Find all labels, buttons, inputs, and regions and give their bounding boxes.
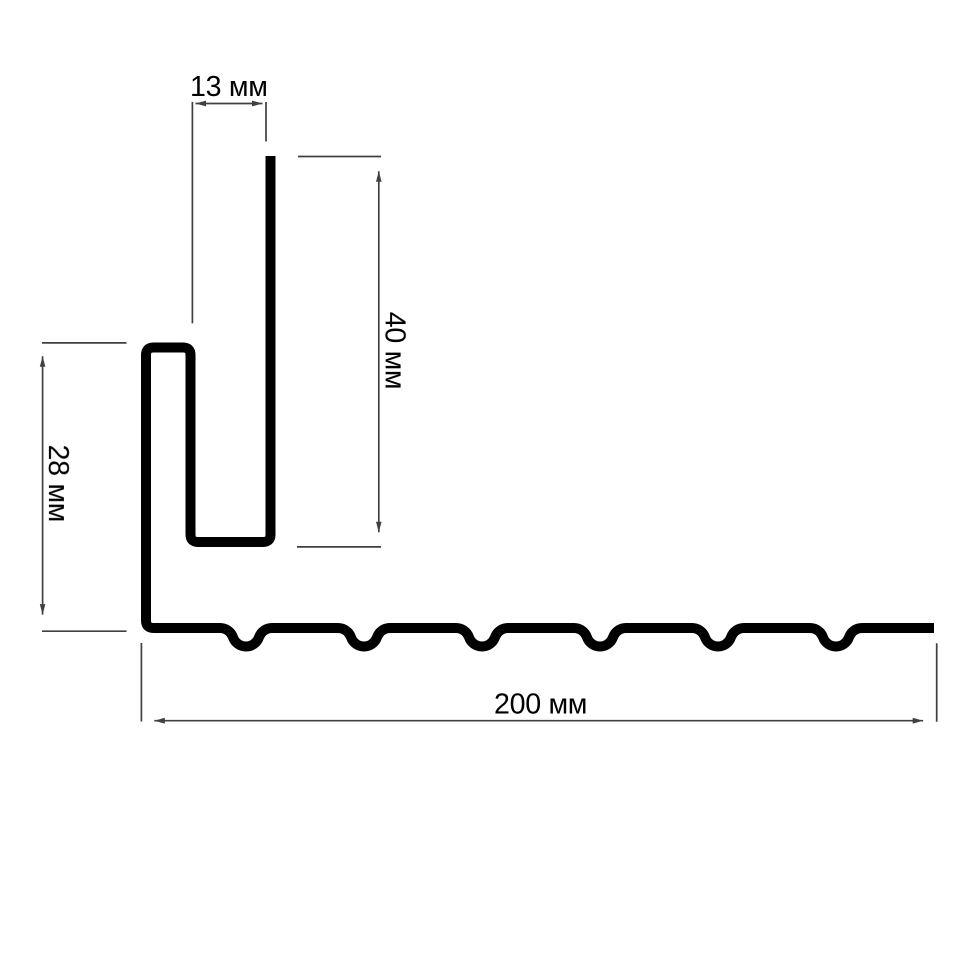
svg-text:200 мм: 200 мм bbox=[494, 689, 587, 721]
svg-text:40 мм: 40 мм bbox=[379, 312, 411, 390]
svg-text:28 мм: 28 мм bbox=[42, 445, 74, 523]
svg-text:13 мм: 13 мм bbox=[190, 71, 268, 103]
